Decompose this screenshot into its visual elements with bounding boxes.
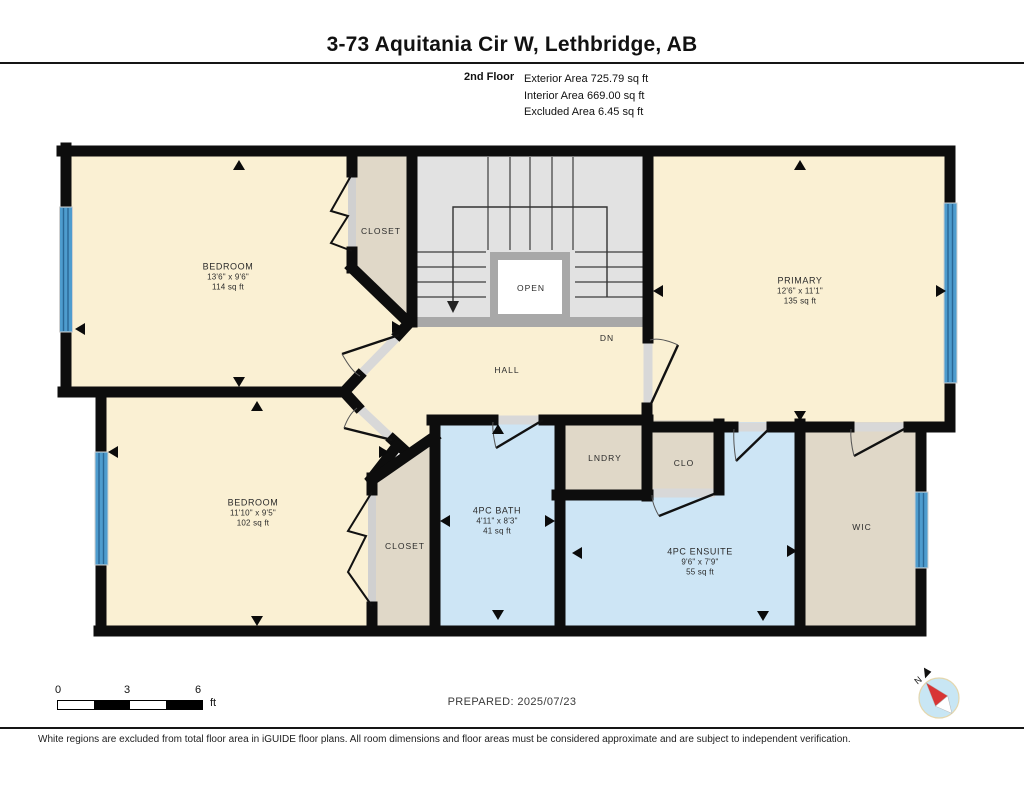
floorplan: BEDROOM 13'6" x 9'6" 114 sq ft PRIMARY 1…	[0, 0, 1024, 791]
compass-icon: N	[907, 664, 971, 728]
room-name: 4PC ENSUITE	[667, 546, 733, 557]
floorplan-canvas	[0, 0, 1024, 791]
scale-tick-0: 0	[55, 684, 61, 696]
closet-top-label: CLOSET	[361, 226, 401, 236]
prepared-date: PREPARED: 2025/07/23	[448, 696, 577, 708]
compass-north-label: N	[912, 674, 923, 686]
hall-label: HALL	[494, 365, 519, 375]
bedroom2-label: BEDROOM 11'10" x 9'5" 102 sq ft	[228, 497, 279, 529]
scale-unit: ft	[210, 697, 216, 709]
ensuite-label: 4PC ENSUITE 9'6" x 7'9" 55 sq ft	[667, 546, 733, 578]
room-area: 41 sq ft	[473, 526, 521, 537]
wic-label: WIC	[852, 522, 872, 532]
bedroom1-label: BEDROOM 13'6" x 9'6" 114 sq ft	[203, 261, 254, 293]
scale-tick-3: 3	[124, 684, 130, 696]
room-area: 55 sq ft	[667, 567, 733, 578]
room-name: BEDROOM	[228, 497, 279, 508]
clo-label: CLO	[674, 458, 694, 468]
scale-bar-segments	[57, 700, 203, 710]
window-primary	[944, 203, 957, 383]
scale-tick-6: 6	[195, 684, 201, 696]
room-name: BEDROOM	[203, 261, 254, 272]
window-bedroom1	[60, 207, 73, 332]
room-area: 114 sq ft	[203, 282, 254, 293]
room-area: 102 sq ft	[228, 518, 279, 529]
dn-label: DN	[600, 333, 614, 343]
room-name: PRIMARY	[777, 275, 823, 286]
primary-label: PRIMARY 12'6" x 11'1" 135 sq ft	[777, 275, 823, 307]
closet-bottom-label: CLOSET	[385, 541, 425, 551]
disclaimer-text: White regions are excluded from total fl…	[38, 734, 851, 745]
lndry-label: LNDRY	[588, 453, 622, 463]
room-name: 4PC BATH	[473, 505, 521, 516]
window-wic	[915, 492, 928, 568]
room-dims: 11'10" x 9'5"	[228, 508, 279, 519]
open-label: OPEN	[517, 283, 545, 293]
window-bedroom2	[95, 452, 108, 565]
bath-label: 4PC BATH 4'11" x 8'3" 41 sq ft	[473, 505, 521, 537]
room-dims: 9'6" x 7'9"	[667, 557, 733, 568]
floorplan-page: 3-73 Aquitania Cir W, Lethbridge, AB 2nd…	[0, 0, 1024, 791]
footer-divider	[0, 727, 1024, 729]
room-area: 135 sq ft	[777, 296, 823, 307]
room-dims: 13'6" x 9'6"	[203, 272, 254, 283]
room-dims: 4'11" x 8'3"	[473, 516, 521, 527]
room-dims: 12'6" x 11'1"	[777, 286, 823, 297]
